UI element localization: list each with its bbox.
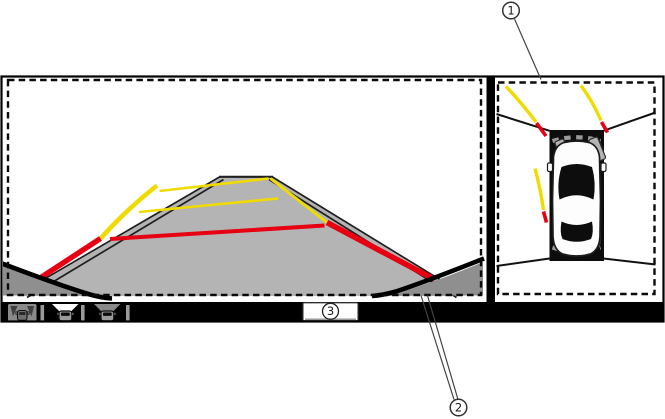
left-mirror xyxy=(548,163,553,172)
callout-2-label: 2 xyxy=(455,400,462,414)
callout-3-label: 3 xyxy=(327,304,334,318)
icon-car-window xyxy=(61,313,70,316)
bar-separator xyxy=(126,305,130,321)
icon-car-mirror xyxy=(27,312,29,315)
bar-separator xyxy=(81,305,85,321)
view-divider xyxy=(487,77,496,302)
icon-car-window xyxy=(19,312,25,315)
display-screen: 3 xyxy=(2,77,664,322)
icon-car-window xyxy=(103,313,112,316)
rear-wide-view-mode-icon[interactable] xyxy=(8,304,37,321)
view-switch-button[interactable]: 3 xyxy=(303,303,358,321)
camera-display-figure: 3 1 2 xyxy=(0,0,665,419)
windshield xyxy=(558,164,594,200)
callout-1-label: 1 xyxy=(507,3,514,17)
bottom-bar: 3 xyxy=(3,302,663,322)
car-top-view-icon xyxy=(548,137,607,256)
callout-1-around-view: 1 xyxy=(503,2,541,79)
around-view-monitor xyxy=(495,77,662,302)
callout-1-leader xyxy=(515,19,542,80)
figure-canvas: 3 1 2 xyxy=(0,0,665,419)
icon-car xyxy=(18,311,28,321)
right-mirror xyxy=(601,163,606,172)
bar-separator xyxy=(41,305,45,321)
rear-camera-view xyxy=(2,77,486,302)
